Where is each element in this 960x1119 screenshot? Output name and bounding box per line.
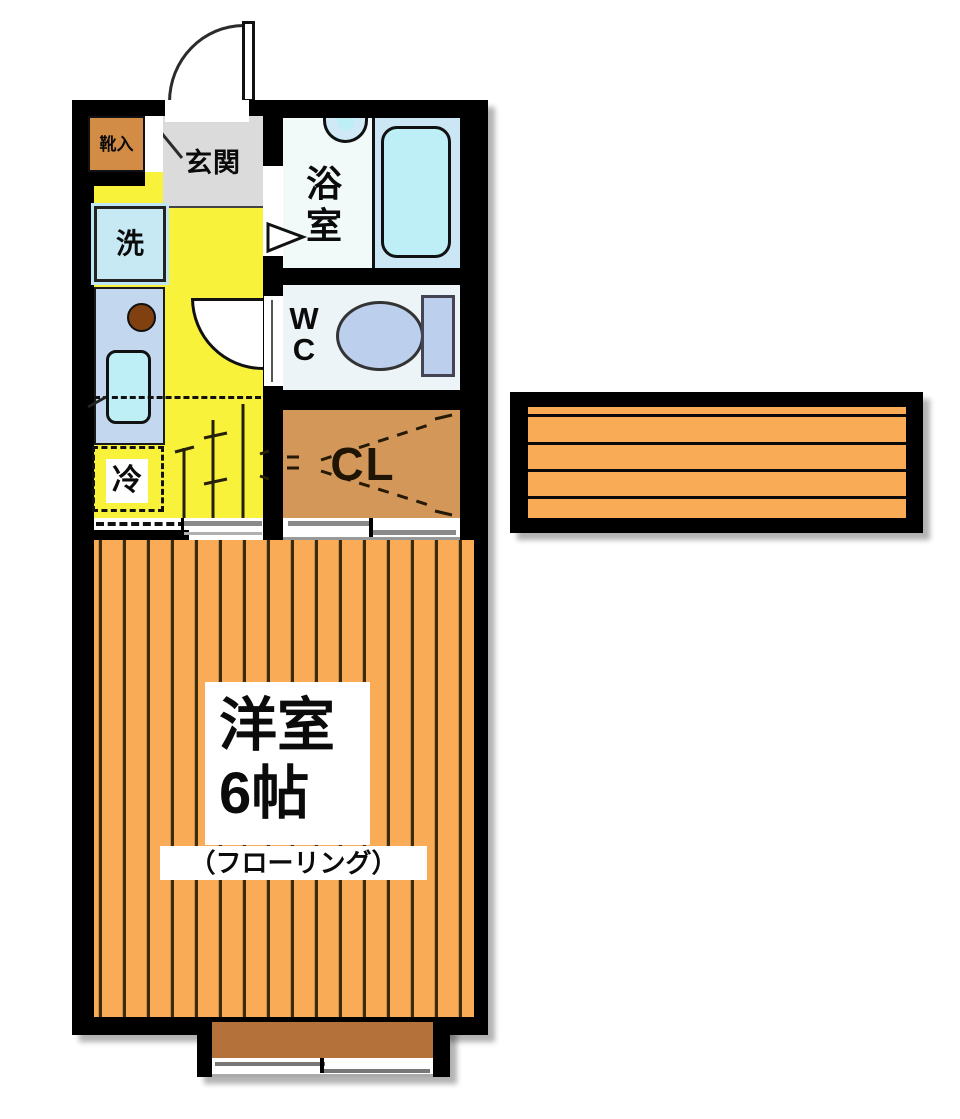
- washer-label: 洗: [116, 230, 144, 258]
- wall-under-shoe-cabinet: [88, 172, 145, 186]
- wc-label: W C: [288, 292, 320, 376]
- sliding-door-closet-rail1: [288, 521, 372, 526]
- sliding-door-kitchen-sill: [94, 530, 189, 540]
- bathroom-label-char2: 室: [306, 208, 342, 244]
- balcony-deck-line3: [528, 469, 906, 472]
- sliding-door-kitchen-dash: [96, 522, 186, 526]
- closet-label-text: CL: [330, 441, 395, 487]
- entrance-landing: [145, 116, 163, 172]
- closet-label: CL: [283, 434, 443, 494]
- partition-marks: [172, 398, 272, 520]
- hall-doorway-leaf-line: [271, 300, 273, 382]
- balcony-deck: [528, 407, 906, 518]
- fridge-label: 冷: [112, 466, 142, 496]
- bay-window-rail1: [215, 1062, 325, 1066]
- washing-machine-space: 洗: [94, 206, 166, 282]
- floor-plan: 玄関 靴入 洗 冷: [0, 0, 960, 1119]
- sliding-door-kitchen-rail2: [184, 532, 262, 535]
- shoe-cabinet-label: 靴入: [100, 136, 134, 153]
- room-name: 洋室: [219, 692, 370, 760]
- balcony-deck-line4: [528, 496, 906, 499]
- toilet-tank: [421, 295, 455, 377]
- room-flooring-note: （フローリング）: [160, 846, 427, 880]
- bay-window-stile: [320, 1058, 324, 1073]
- shoe-cabinet: 靴入: [88, 116, 145, 172]
- sliding-door-closet-rail2: [372, 530, 456, 535]
- wc-label-char2: C: [293, 334, 315, 365]
- bathtub: [381, 126, 451, 258]
- sliding-door-kitchen: [94, 518, 263, 540]
- entrance-label-text: 玄関: [185, 150, 241, 177]
- room-flooring-note-text: （フローリング）: [189, 850, 397, 876]
- bay-window-base: [212, 1074, 433, 1077]
- wc-label-char1: W: [289, 303, 318, 334]
- bathroom-folding-door-icon: [265, 220, 307, 256]
- entrance-door-leaf: [242, 21, 255, 102]
- balcony-deck-line2: [528, 442, 906, 445]
- counter-corner-mark: [86, 392, 108, 410]
- hall-doorway-opening: [264, 296, 283, 386]
- sliding-door-kitchen-rail1: [184, 521, 262, 526]
- room-size: 6帖: [219, 760, 370, 828]
- bathroom-label-char1: 浴: [306, 166, 342, 202]
- toilet-bowl: [336, 301, 424, 371]
- bay-window-rail2: [322, 1069, 430, 1073]
- room-label-box: 洋室 6帖: [205, 682, 370, 845]
- entrance-door-opening: [165, 100, 249, 122]
- stove-burner-icon: [127, 303, 156, 332]
- balcony-deck-line1: [528, 414, 906, 417]
- sliding-door-kitchen-stile: [181, 518, 184, 540]
- sliding-door-closet: [283, 518, 460, 540]
- entrance-door-arc: [168, 24, 244, 102]
- bay-platform: [212, 1022, 433, 1058]
- fridge-label-box: 冷: [106, 459, 148, 503]
- bay-sliding-window: [212, 1058, 433, 1077]
- kitchen-sink: [106, 350, 151, 424]
- bathroom-label: 浴 室: [300, 150, 348, 260]
